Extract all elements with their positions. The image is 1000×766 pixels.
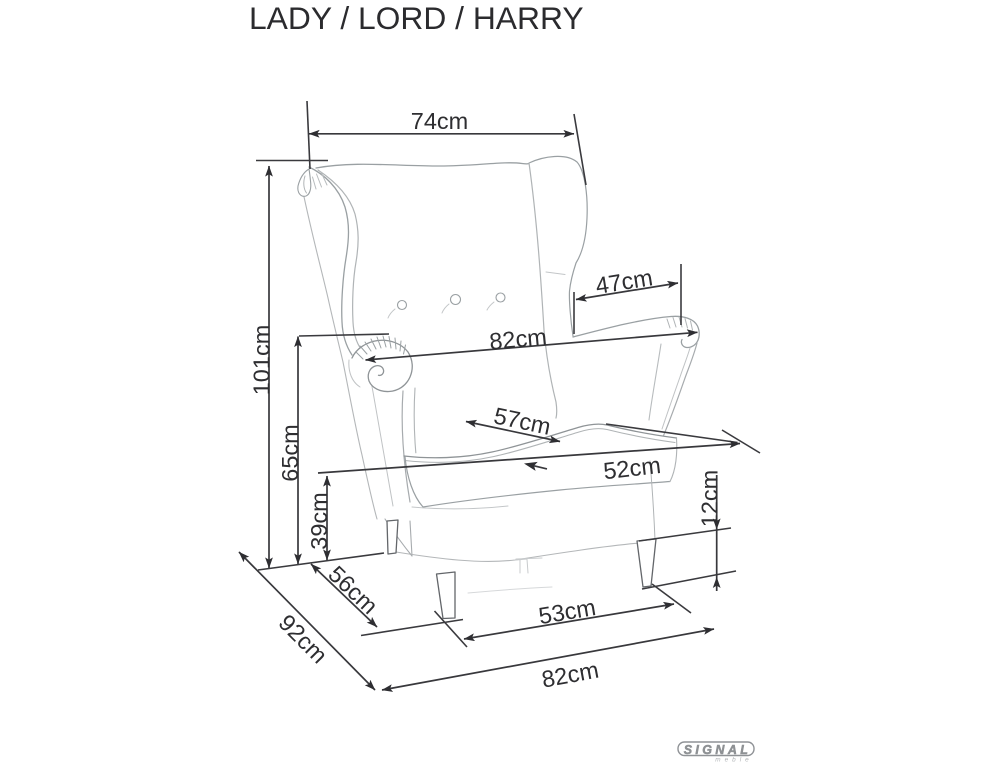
svg-text:65cm: 65cm [277,424,303,481]
svg-text:meble: meble [715,757,752,764]
svg-text:39cm: 39cm [306,492,332,549]
svg-text:LADY / LORD / HARRY: LADY / LORD / HARRY [249,0,584,36]
svg-text:57cm: 57cm [492,402,554,439]
svg-text:56cm: 56cm [323,561,383,619]
svg-text:SIGNAL: SIGNAL [684,743,752,757]
svg-text:82cm: 82cm [488,324,548,355]
svg-text:12cm: 12cm [697,470,723,527]
svg-text:74cm: 74cm [411,108,468,134]
svg-text:82cm: 82cm [539,657,600,693]
svg-text:101cm: 101cm [249,325,275,396]
svg-text:47cm: 47cm [594,264,655,299]
svg-text:53cm: 53cm [537,594,598,629]
